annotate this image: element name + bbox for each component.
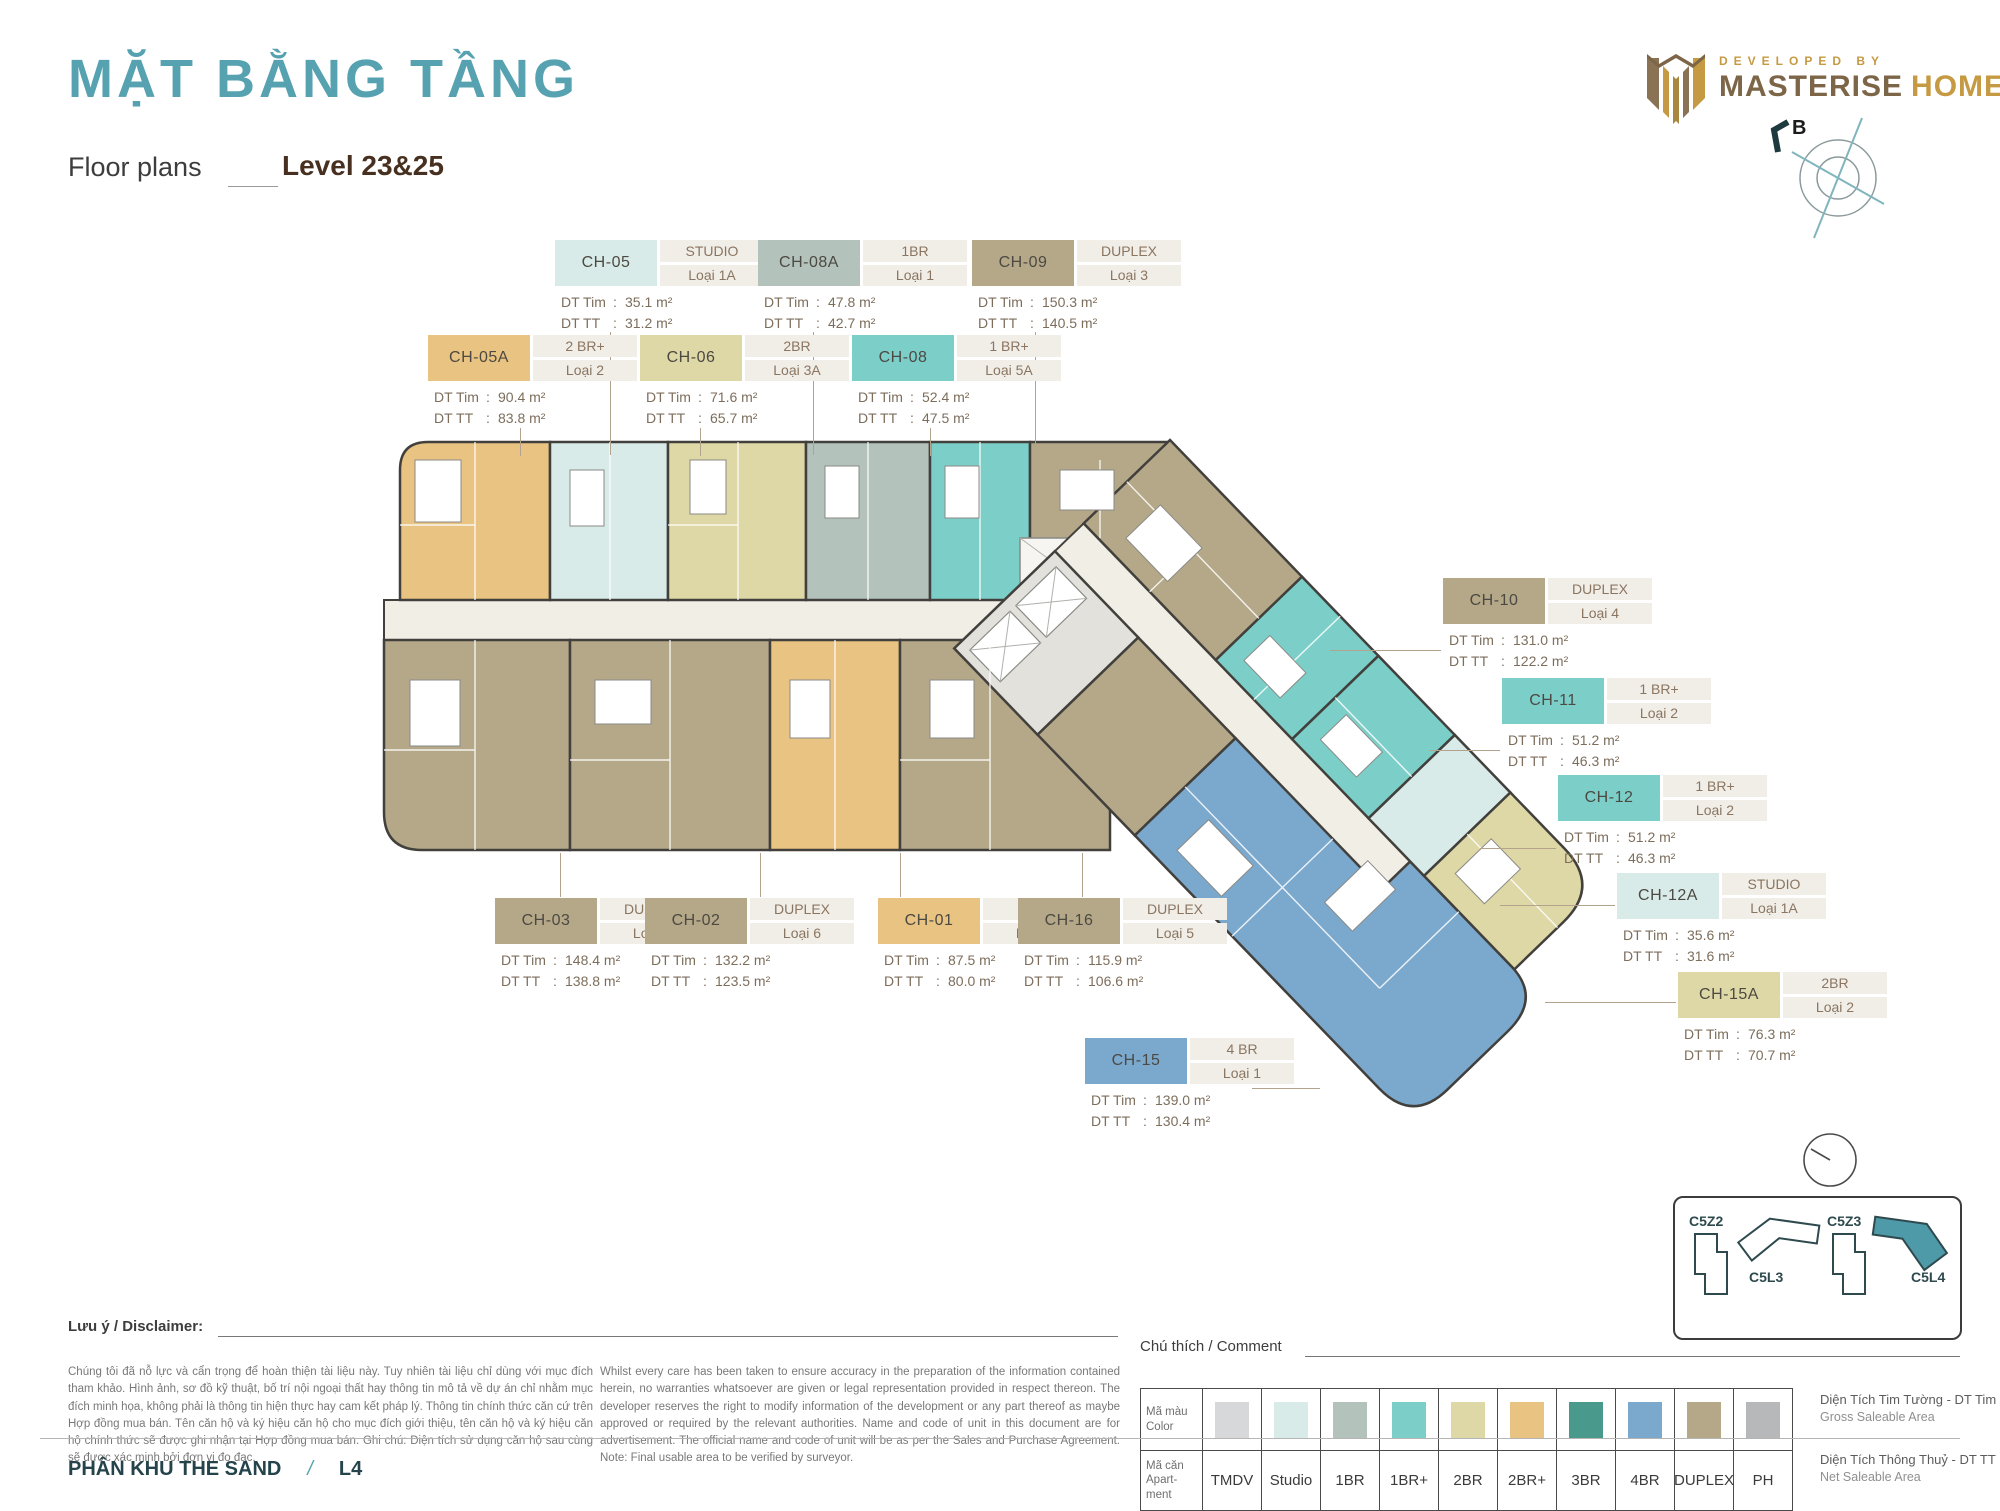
legend-item-label: 2BR+ [1508,1472,1546,1489]
unit-type-label: 1 BR+ [957,335,1061,357]
key-plan: C5Z2 C5L3 C5Z3 C5L4 [1673,1196,1962,1340]
unit-variant-label: Loại 1 [1190,1063,1294,1085]
unit-callout-CH-15A: CH-15A2BRLoại 2DT Tim:76.3 m²DT TT:70.7 … [1678,972,1887,1066]
legend-swatch-Studio [1262,1389,1321,1451]
unit-areas: DT Tim:47.8 m²DT TT:42.7 m² [764,292,967,334]
unit-callout-CH-09: CH-09DUPLEXLoại 3DT Tim:150.3 m²DT TT:14… [972,240,1181,334]
plan-unit-CH-05 [550,442,668,600]
keyplan-label-C5L3: C5L3 [1749,1269,1783,1285]
legend-swatch-DUPLEX [1675,1389,1734,1451]
legend-label-3BR: 3BR [1557,1451,1616,1511]
unit-code: CH-08A [758,240,860,286]
unit-variant-label: Loại 6 [750,923,854,945]
unit-areas: DT Tim:35.1 m²DT TT:31.2 m² [561,292,764,334]
unit-areas: DT Tim:131.0 m²DT TT:122.2 m² [1449,630,1652,672]
north-compass-icon: B [1740,100,1930,250]
clock-icon [1795,1125,1865,1195]
unit-variant-label: Loại 2 [533,360,637,382]
callout-leader-line [930,428,931,456]
unit-net-area: DT TT:83.8 m² [434,408,637,429]
legend-header: Chú thích / Comment [1140,1338,1282,1355]
unit-variant-label: Loại 2 [1607,703,1711,725]
legend-swatch-1BR+ [1380,1389,1439,1451]
unit-net-area: DT TT:31.6 m² [1623,946,1826,967]
unit-callout-head: CH-062BRLoại 3A [640,335,849,381]
unit-variant-label: Loại 1A [1722,898,1826,920]
keyplan-shape-C5L3 [1736,1215,1819,1269]
unit-type-label: DUPLEX [750,898,854,920]
legend-label-DUPLEX: DUPLEX [1675,1451,1734,1511]
keyplan-shape-C5Z3 [1833,1234,1865,1294]
unit-callout-CH-16: CH-16DUPLEXLoại 5DT Tim:115.9 m²DT TT:10… [1018,898,1227,992]
unit-net-area: DT TT:130.4 m² [1091,1111,1294,1132]
legend-swatch-2BR+ [1498,1389,1557,1451]
unit-gross-area: DT Tim:52.4 m² [858,387,1061,408]
callout-leader-line [900,853,901,897]
unit-net-area: DT TT:123.5 m² [651,971,854,992]
callout-leader-line [520,428,521,456]
unit-net-area: DT TT:31.2 m² [561,313,764,334]
compass-north-label: B [1792,117,1806,139]
legend-swatch-1BR [1321,1389,1380,1451]
unit-code: CH-02 [645,898,747,944]
legend-label-1BR+: 1BR+ [1380,1451,1439,1511]
subtitle-divider [228,186,278,187]
legend-item-label: 4BR [1630,1472,1659,1489]
unit-callout-CH-12A: CH-12ASTUDIOLoại 1ADT Tim:35.6 m²DT TT:3… [1617,873,1826,967]
unit-callout-CH-08A: CH-08A1BRLoại 1DT Tim:47.8 m²DT TT:42.7 … [758,240,967,334]
disclaimer-header: Lưu ý / Disclaimer: [68,1318,203,1335]
unit-variant-label: Loại 5 [1123,923,1227,945]
legend-item-label: DUPLEX [1674,1472,1734,1489]
unit-type-label: 2BR [1783,972,1887,994]
legend-swatch-PH [1734,1389,1793,1451]
developer-brand: MASTERISEHOMES [1719,70,2000,104]
unit-type-label: STUDIO [660,240,764,262]
unit-code: CH-03 [495,898,597,944]
unit-type-label: DUPLEX [1077,240,1181,262]
unit-type: STUDIOLoại 1A [660,240,764,286]
unit-areas: DT Tim:132.2 m²DT TT:123.5 m² [651,950,854,992]
legend-label-2BR: 2BR [1439,1451,1498,1511]
unit-areas: DT Tim:139.0 m²DT TT:130.4 m² [1091,1090,1294,1132]
unit-callout-head: CH-08A1BRLoại 1 [758,240,967,286]
unit-callout-head: CH-09DUPLEXLoại 3 [972,240,1181,286]
unit-gross-area: DT Tim:90.4 m² [434,387,637,408]
unit-callout-head: CH-15A2BRLoại 2 [1678,972,1887,1018]
legend-label-2BR+: 2BR+ [1498,1451,1557,1511]
unit-type: 1 BR+Loại 5A [957,335,1061,381]
unit-code: CH-08 [852,335,954,381]
unit-variant-label: Loại 1A [660,265,764,287]
keyplan-label-C5Z2: C5Z2 [1689,1213,1723,1229]
unit-type: 4 BRLoại 1 [1190,1038,1294,1084]
legend-item-label: 1BR [1335,1472,1364,1489]
disclaimer-text-en: Whilst every care has been taken to ensu… [600,1364,1120,1468]
callout-leader-line [1545,1002,1676,1003]
unit-type: 1BRLoại 1 [863,240,967,286]
keyplan-label-C5L4: C5L4 [1911,1269,1945,1285]
unit-type: STUDIOLoại 1A [1722,873,1826,919]
masterise-monogram-icon [1645,52,1707,126]
unit-code: CH-12 [1558,775,1660,821]
legend-label-1BR: 1BR [1321,1451,1380,1511]
unit-callout-CH-05: CH-05STUDIOLoại 1ADT Tim:35.1 m²DT TT:31… [555,240,764,334]
unit-gross-area: DT Tim:115.9 m² [1024,950,1227,971]
unit-type: 1 BR+Loại 2 [1607,678,1711,724]
unit-type: DUPLEXLoại 5 [1123,898,1227,944]
callout-leader-line [1430,750,1500,751]
unit-type: 2BRLoại 3A [745,335,849,381]
unit-code: CH-01 [878,898,980,944]
unit-gross-area: DT Tim:35.1 m² [561,292,764,313]
unit-callout-head: CH-111 BR+Loại 2 [1502,678,1711,724]
unit-gross-area: DT Tim:76.3 m² [1684,1024,1887,1045]
unit-gross-area: DT Tim:139.0 m² [1091,1090,1294,1111]
unit-callout-CH-08: CH-081 BR+Loại 5ADT Tim:52.4 m²DT TT:47.… [852,335,1061,429]
unit-type-label: 1 BR+ [1607,678,1711,700]
footer-rule [40,1438,1960,1439]
callout-leader-line [1082,853,1083,897]
unit-areas: DT Tim:115.9 m²DT TT:106.6 m² [1024,950,1227,992]
unit-gross-area: DT Tim:51.2 m² [1508,730,1711,751]
unit-callout-CH-15: CH-154 BRLoại 1DT Tim:139.0 m²DT TT:130.… [1085,1038,1294,1132]
floor-level-label: Level 23&25 [282,150,444,182]
unit-code: CH-06 [640,335,742,381]
unit-callout-head: CH-081 BR+Loại 5A [852,335,1061,381]
unit-type-label: 4 BR [1190,1038,1294,1060]
legend-item-label: 2BR [1453,1472,1482,1489]
legend-swatch-4BR [1616,1389,1675,1451]
unit-variant-label: Loại 2 [1783,997,1887,1019]
page-title: MẶT BẰNG TẦNG [68,48,579,110]
unit-type-label: 2 BR+ [533,335,637,357]
disclaimer-text-vi: Chúng tôi đã nỗ lực và cẩn trọng để hoàn… [68,1364,593,1468]
legend-swatch-2BR [1439,1389,1498,1451]
unit-code: CH-16 [1018,898,1120,944]
unit-net-area: DT TT:47.5 m² [858,408,1061,429]
callout-leader-line [1500,905,1615,906]
unit-type: DUPLEXLoại 4 [1548,578,1652,624]
unit-callout-CH-12: CH-121 BR+Loại 2DT Tim:51.2 m²DT TT:46.3… [1558,775,1767,869]
area-note-gross: Diện Tích Tim Tường - DT Tim Gross Salea… [1820,1392,2000,1424]
unit-gross-area: DT Tim:35.6 m² [1623,925,1826,946]
unit-type: 2 BR+Loại 2 [533,335,637,381]
legend-item-label: Studio [1270,1472,1313,1489]
unit-areas: DT Tim:150.3 m²DT TT:140.5 m² [978,292,1181,334]
unit-areas: DT Tim:71.6 m²DT TT:65.7 m² [646,387,849,429]
unit-variant-label: Loại 2 [1663,800,1767,822]
unit-gross-area: DT Tim:150.3 m² [978,292,1181,313]
unit-gross-area: DT Tim:131.0 m² [1449,630,1652,651]
unit-variant-label: Loại 5A [957,360,1061,382]
unit-code: CH-09 [972,240,1074,286]
unit-type-label: STUDIO [1722,873,1826,895]
keyplan-label-C5Z3: C5Z3 [1827,1213,1861,1229]
legend-item-label: TMDV [1211,1472,1254,1489]
unit-net-area: DT TT:140.5 m² [978,313,1181,334]
unit-code: CH-10 [1443,578,1545,624]
disclaimer-rule [218,1336,1118,1337]
unit-areas: DT Tim:90.4 m²DT TT:83.8 m² [434,387,637,429]
unit-code: CH-05 [555,240,657,286]
legend-item-label: 1BR+ [1390,1472,1428,1489]
unit-type-label: 1 BR+ [1663,775,1767,797]
unit-type-label: 1BR [863,240,967,262]
unit-type-label: 2BR [745,335,849,357]
unit-type-label: DUPLEX [1548,578,1652,600]
legend-swatch-TMDV [1203,1389,1262,1451]
legend-label-PH: PH [1734,1451,1793,1511]
unit-callout-head: CH-12ASTUDIOLoại 1A [1617,873,1826,919]
unit-callout-CH-10: CH-10DUPLEXLoại 4DT Tim:131.0 m²DT TT:12… [1443,578,1652,672]
unit-callout-CH-11: CH-111 BR+Loại 2DT Tim:51.2 m²DT TT:46.3… [1502,678,1711,772]
unit-type: DUPLEXLoại 3 [1077,240,1181,286]
unit-gross-area: DT Tim:47.8 m² [764,292,967,313]
unit-type: 2BRLoại 2 [1783,972,1887,1018]
page-subtitle: Floor plans [68,152,202,183]
legend-item-label: 3BR [1571,1472,1600,1489]
unit-callout-head: CH-121 BR+Loại 2 [1558,775,1767,821]
keyplan-shape-C5L4 [1869,1217,1951,1273]
unit-net-area: DT TT:46.3 m² [1508,751,1711,772]
callout-leader-line [760,853,761,897]
unit-callout-head: CH-05A2 BR+Loại 2 [428,335,637,381]
unit-callout-head: CH-05STUDIOLoại 1A [555,240,764,286]
unit-gross-area: DT Tim:51.2 m² [1564,827,1767,848]
unit-net-area: DT TT:106.6 m² [1024,971,1227,992]
unit-areas: DT Tim:51.2 m²DT TT:46.3 m² [1564,827,1767,869]
unit-gross-area: DT Tim:71.6 m² [646,387,849,408]
unit-variant-label: Loại 3 [1077,265,1181,287]
legend-rule [1305,1356,1960,1357]
unit-callout-CH-06: CH-062BRLoại 3ADT Tim:71.6 m²DT TT:65.7 … [640,335,849,429]
legend-label-4BR: 4BR [1616,1451,1675,1511]
unit-code: CH-11 [1502,678,1604,724]
plan-unit-CH-06 [668,442,806,600]
unit-variant-label: Loại 4 [1548,603,1652,625]
floor-plan-drawing [370,430,1630,1230]
footer-slash: / [307,1458,313,1481]
footer-level-code: L4 [339,1458,362,1481]
unit-variant-label: Loại 1 [863,265,967,287]
footer: PHÂN KHU THE SAND / L4 [68,1458,362,1481]
area-note-net: Diện Tích Thông Thuỷ - DT TT Net Saleabl… [1820,1452,2000,1484]
footer-zone: PHÂN KHU THE SAND [68,1458,281,1481]
unit-code: CH-05A [428,335,530,381]
unit-areas: DT Tim:51.2 m²DT TT:46.3 m² [1508,730,1711,772]
unit-code: CH-12A [1617,873,1719,919]
unit-callout-head: CH-16DUPLEXLoại 5 [1018,898,1227,944]
unit-net-area: DT TT:46.3 m² [1564,848,1767,869]
unit-areas: DT Tim:76.3 m²DT TT:70.7 m² [1684,1024,1887,1066]
unit-areas: DT Tim:35.6 m²DT TT:31.6 m² [1623,925,1826,967]
unit-callout-head: CH-02DUPLEXLoại 6 [645,898,854,944]
keyplan-shape-C5Z2 [1695,1234,1727,1294]
unit-callout-CH-02: CH-02DUPLEXLoại 6DT Tim:132.2 m²DT TT:12… [645,898,854,992]
unit-net-area: DT TT:42.7 m² [764,313,967,334]
legend-label-Studio: Studio [1262,1451,1321,1511]
legend-swatch-3BR [1557,1389,1616,1451]
unit-variant-label: Loại 3A [745,360,849,382]
unit-type: 1 BR+Loại 2 [1663,775,1767,821]
floor-plan-page: { "header": { "title_vi": "MẶT BẰNG TẦNG… [0,0,2000,1500]
callout-leader-line [1480,848,1556,849]
unit-code: CH-15A [1678,972,1780,1018]
unit-net-area: DT TT:70.7 m² [1684,1045,1887,1066]
legend-item-label: PH [1753,1472,1774,1489]
unit-net-area: DT TT:65.7 m² [646,408,849,429]
unit-callout-head: CH-154 BRLoại 1 [1085,1038,1294,1084]
unit-gross-area: DT Tim:132.2 m² [651,950,854,971]
legend-table: Mã màuColorMã cănApart-mentTMDVStudio1BR… [1140,1388,1793,1511]
callout-leader-line [560,853,561,897]
legend-color-row-label: Mã màuColor [1141,1389,1203,1451]
unit-type-label: DUPLEX [1123,898,1227,920]
unit-net-area: DT TT:122.2 m² [1449,651,1652,672]
legend-label-TMDV: TMDV [1203,1451,1262,1511]
callout-leader-line [1330,650,1441,651]
unit-areas: DT Tim:52.4 m²DT TT:47.5 m² [858,387,1061,429]
developer-tagline: DEVELOPED BY [1719,54,2000,68]
unit-code: CH-15 [1085,1038,1187,1084]
unit-callout-CH-05A: CH-05A2 BR+Loại 2DT Tim:90.4 m²DT TT:83.… [428,335,637,429]
unit-callout-head: CH-10DUPLEXLoại 4 [1443,578,1652,624]
callout-leader-line [700,428,701,456]
unit-type: DUPLEXLoại 6 [750,898,854,944]
legend-apartment-row-label: Mã cănApart-ment [1141,1451,1203,1511]
